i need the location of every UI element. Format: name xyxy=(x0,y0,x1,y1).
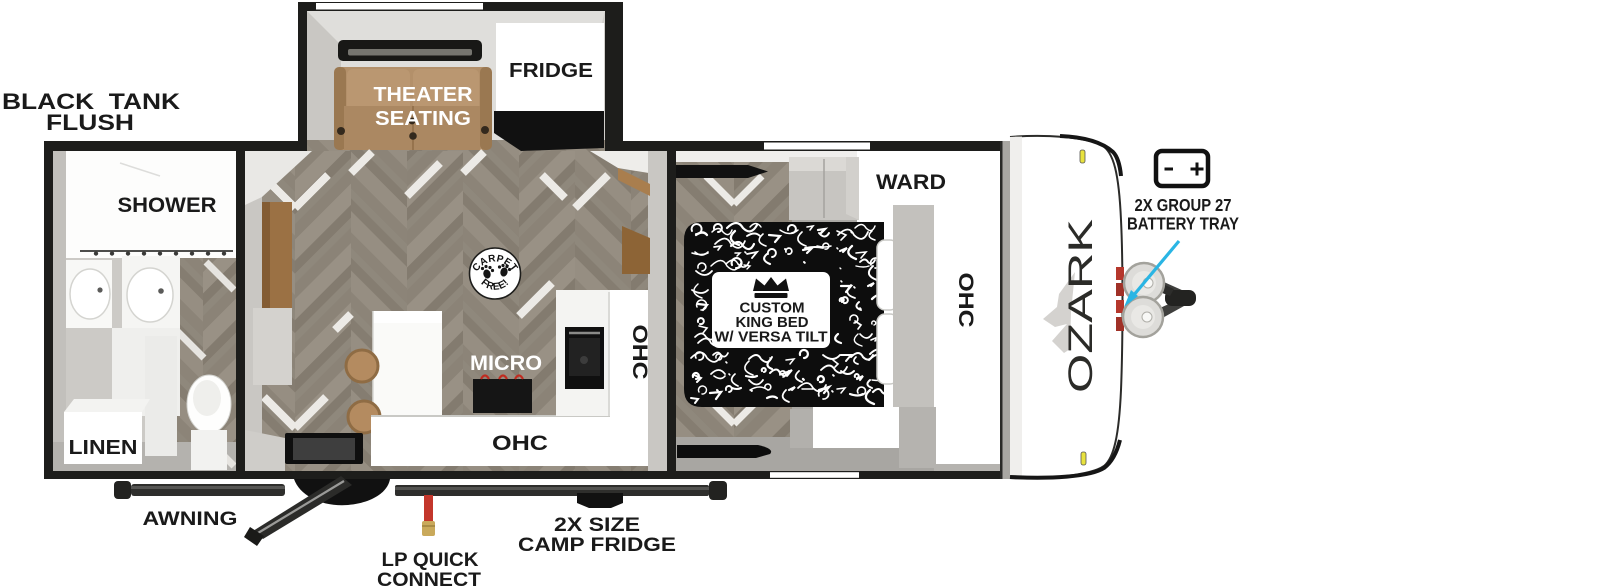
svg-text:2X SIZE: 2X SIZE xyxy=(554,514,640,536)
svg-text:CONNECT: CONNECT xyxy=(377,569,481,587)
svg-text:WARD: WARD xyxy=(876,171,946,194)
svg-text:BATTERY TRAY: BATTERY TRAY xyxy=(1127,214,1239,234)
svg-text:LINEN: LINEN xyxy=(69,437,138,459)
svg-text:OHC: OHC xyxy=(492,432,548,455)
svg-text:CAMP FRIDGE: CAMP FRIDGE xyxy=(518,534,676,556)
svg-text:SHOWER: SHOWER xyxy=(118,193,217,217)
svg-text:MICRO: MICRO xyxy=(470,352,542,375)
svg-text:OHC: OHC xyxy=(628,325,651,380)
svg-text:THEATER: THEATER xyxy=(374,84,474,106)
svg-text:LP QUICK: LP QUICK xyxy=(382,549,479,571)
svg-text:2X GROUP 27: 2X GROUP 27 xyxy=(1135,195,1232,215)
svg-text:FRIDGE: FRIDGE xyxy=(509,59,593,82)
svg-text:OZARK: OZARK xyxy=(1062,219,1100,393)
svg-text:SEATING: SEATING xyxy=(375,108,471,130)
svg-text:OHC: OHC xyxy=(954,273,977,328)
svg-text:W/ VERSA TILT: W/ VERSA TILT xyxy=(715,330,828,346)
svg-text:FLUSH: FLUSH xyxy=(46,110,134,135)
svg-text:AWNING: AWNING xyxy=(143,508,238,530)
